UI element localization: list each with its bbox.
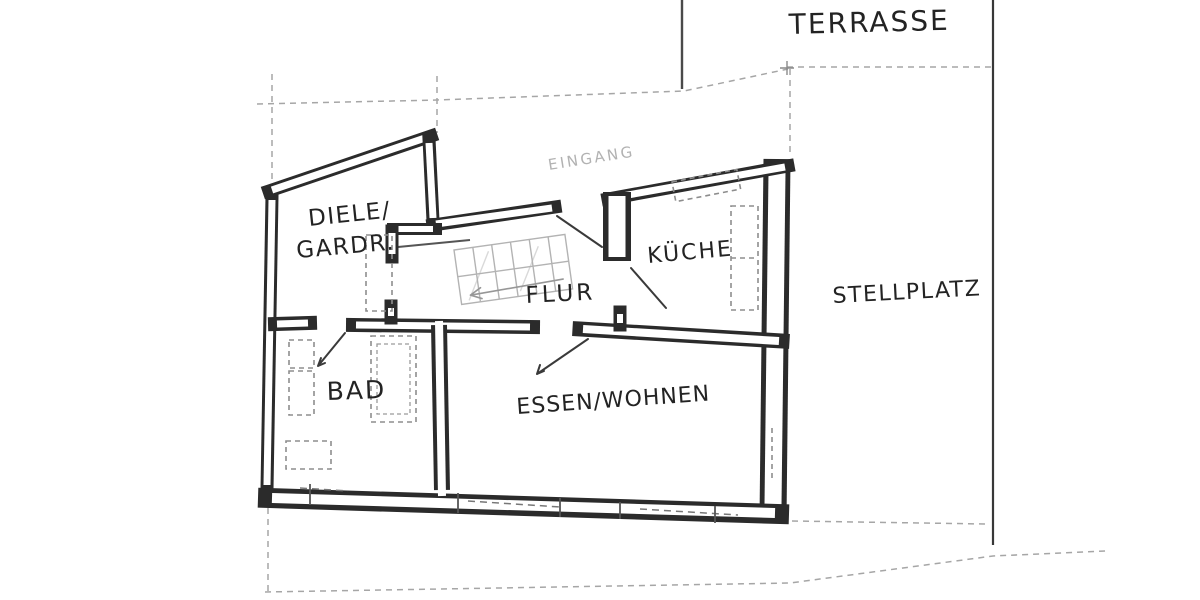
label-stellplatz: STELLPLATZ <box>832 276 982 309</box>
label-kueche: KÜCHE <box>646 236 734 269</box>
label-flur: FLUR <box>525 279 596 309</box>
room-labels: TERRASSE STELLPLATZ DIELE/ GARDR. KÜCHE … <box>295 4 982 420</box>
scanned-floorplan-page: TERRASSE STELLPLATZ DIELE/ GARDR. KÜCHE … <box>0 0 1200 600</box>
bad-sink-dashed <box>289 340 314 368</box>
label-eingang: EINGANG <box>547 143 636 174</box>
floor-plan-sketch: TERRASSE STELLPLATZ DIELE/ GARDR. KÜCHE … <box>0 0 1200 600</box>
bad-door-arrow <box>318 333 345 366</box>
label-diele-line1: DIELE/ <box>307 197 392 232</box>
bad-lower-fixture-dashed <box>286 441 331 469</box>
bad-wc-dashed <box>289 371 314 415</box>
label-bad: BAD <box>326 375 386 406</box>
guide-bottom-property <box>265 551 1106 592</box>
essen-door-arrow <box>537 339 588 374</box>
wall-kitchen-top-core <box>611 167 785 198</box>
wall-peak-core <box>429 143 433 218</box>
wall-diele-top-core <box>272 137 428 190</box>
wall-outer-left-core <box>267 200 272 485</box>
guide-horizontal-upper <box>257 69 788 104</box>
guide-stellplatz-bottom <box>792 521 986 524</box>
survey-cross-tick <box>780 61 794 75</box>
label-diele-line2: GARDR. <box>295 229 396 264</box>
wall-flur-band-left-core <box>277 323 308 324</box>
wall-bad-essen-divider-core <box>439 321 442 496</box>
kitchen-door-swing <box>631 268 666 308</box>
label-essen-wohnen: ESSEN/WOHNEN <box>516 382 711 420</box>
entrance-door-swing <box>557 216 602 247</box>
walls <box>267 136 788 519</box>
stair-top-edge <box>398 240 470 247</box>
label-terrasse: TERRASSE <box>787 4 950 41</box>
